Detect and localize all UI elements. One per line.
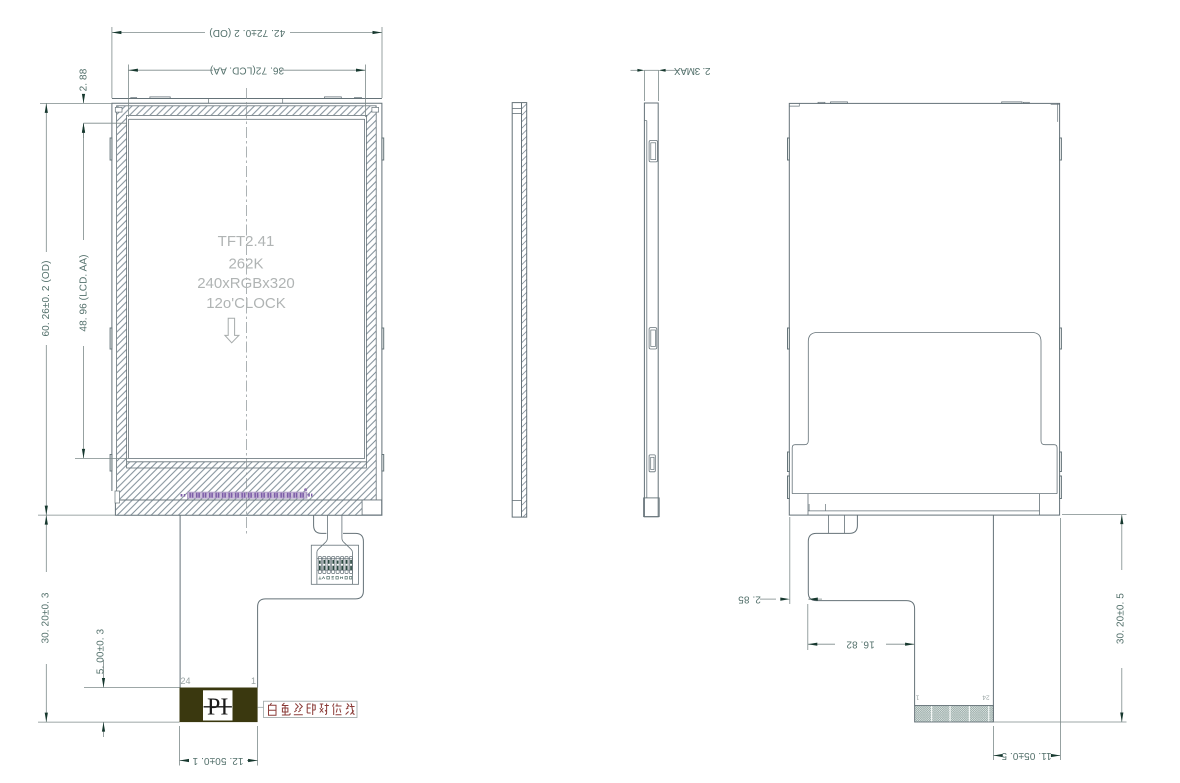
svg-text:48. 96 (LCD. AA): 48. 96 (LCD. AA) [79, 254, 90, 331]
svg-text:5. 00±0. 3: 5. 00±0. 3 [96, 628, 107, 674]
svg-text:2. 3MAX: 2. 3MAX [674, 65, 711, 76]
svg-text:24: 24 [180, 676, 190, 686]
svg-text:240xRGBx320: 240xRGBx320 [197, 275, 295, 292]
svg-text:TFT2.41: TFT2.41 [218, 233, 275, 250]
svg-text:11. 05±0. 5: 11. 05±0. 5 [1001, 750, 1052, 761]
svg-text:2. 88: 2. 88 [78, 68, 89, 91]
svg-text:262K: 262K [228, 255, 263, 272]
svg-text:1: 1 [251, 676, 256, 686]
svg-text:24: 24 [982, 694, 990, 701]
svg-text:42. 72±0. 2 (OD): 42. 72±0. 2 (OD) [209, 27, 285, 38]
svg-text:12. 50±0. 1: 12. 50±0. 1 [192, 755, 243, 766]
svg-text:2. 85: 2. 85 [738, 594, 761, 605]
svg-text:1: 1 [915, 694, 919, 701]
svg-text:30. 20±0. 3: 30. 20±0. 3 [41, 592, 52, 643]
svg-text:12o'CLOCK: 12o'CLOCK [206, 295, 286, 312]
svg-text:30. 20±0. 5: 30. 20±0. 5 [1116, 593, 1127, 644]
svg-text:60. 26±0. 2 (OD): 60. 26±0. 2 (OD) [41, 260, 52, 336]
svg-text:36. 72(LCD. AA): 36. 72(LCD. AA) [210, 65, 284, 76]
svg-text:16. 82: 16. 82 [846, 639, 875, 650]
